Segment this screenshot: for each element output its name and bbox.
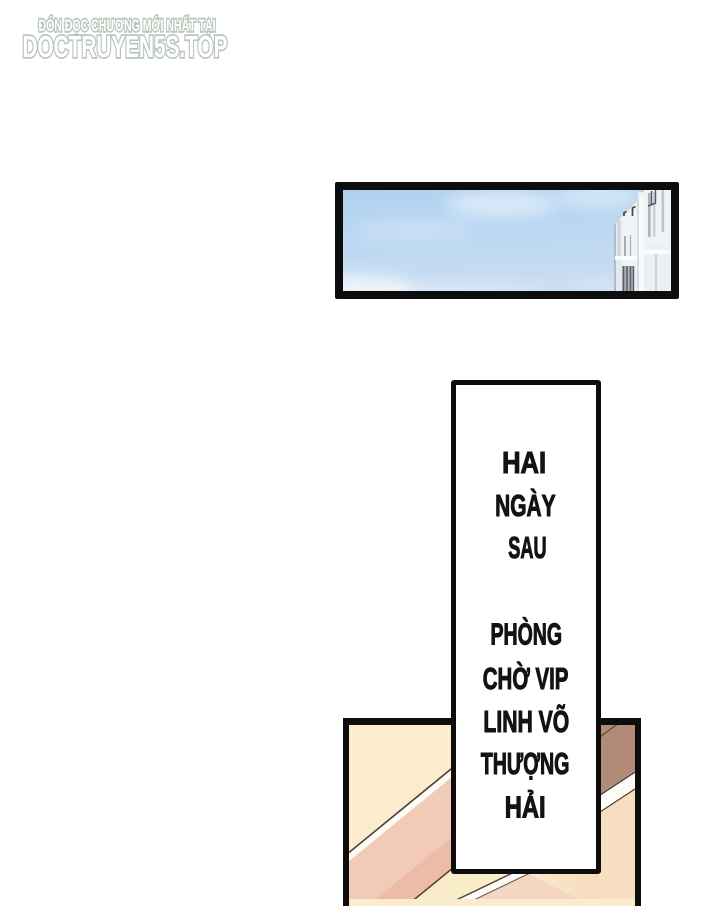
svg-text:NGÀY: NGÀY bbox=[495, 488, 556, 523]
svg-text:CHỜ VIP: CHỜ VIP bbox=[483, 661, 569, 696]
svg-text:SAU: SAU bbox=[508, 531, 546, 565]
svg-text:DOCTRUYEN5S.TOP: DOCTRUYEN5S.TOP bbox=[23, 29, 228, 64]
svg-text:THƯỢNG: THƯỢNG bbox=[481, 748, 570, 781]
svg-text:PHÒNG: PHÒNG bbox=[491, 616, 563, 652]
svg-text:HAI: HAI bbox=[502, 446, 546, 481]
svg-text:LINH VÕ: LINH VÕ bbox=[483, 704, 569, 739]
svg-text:HẢI: HẢI bbox=[505, 788, 546, 824]
